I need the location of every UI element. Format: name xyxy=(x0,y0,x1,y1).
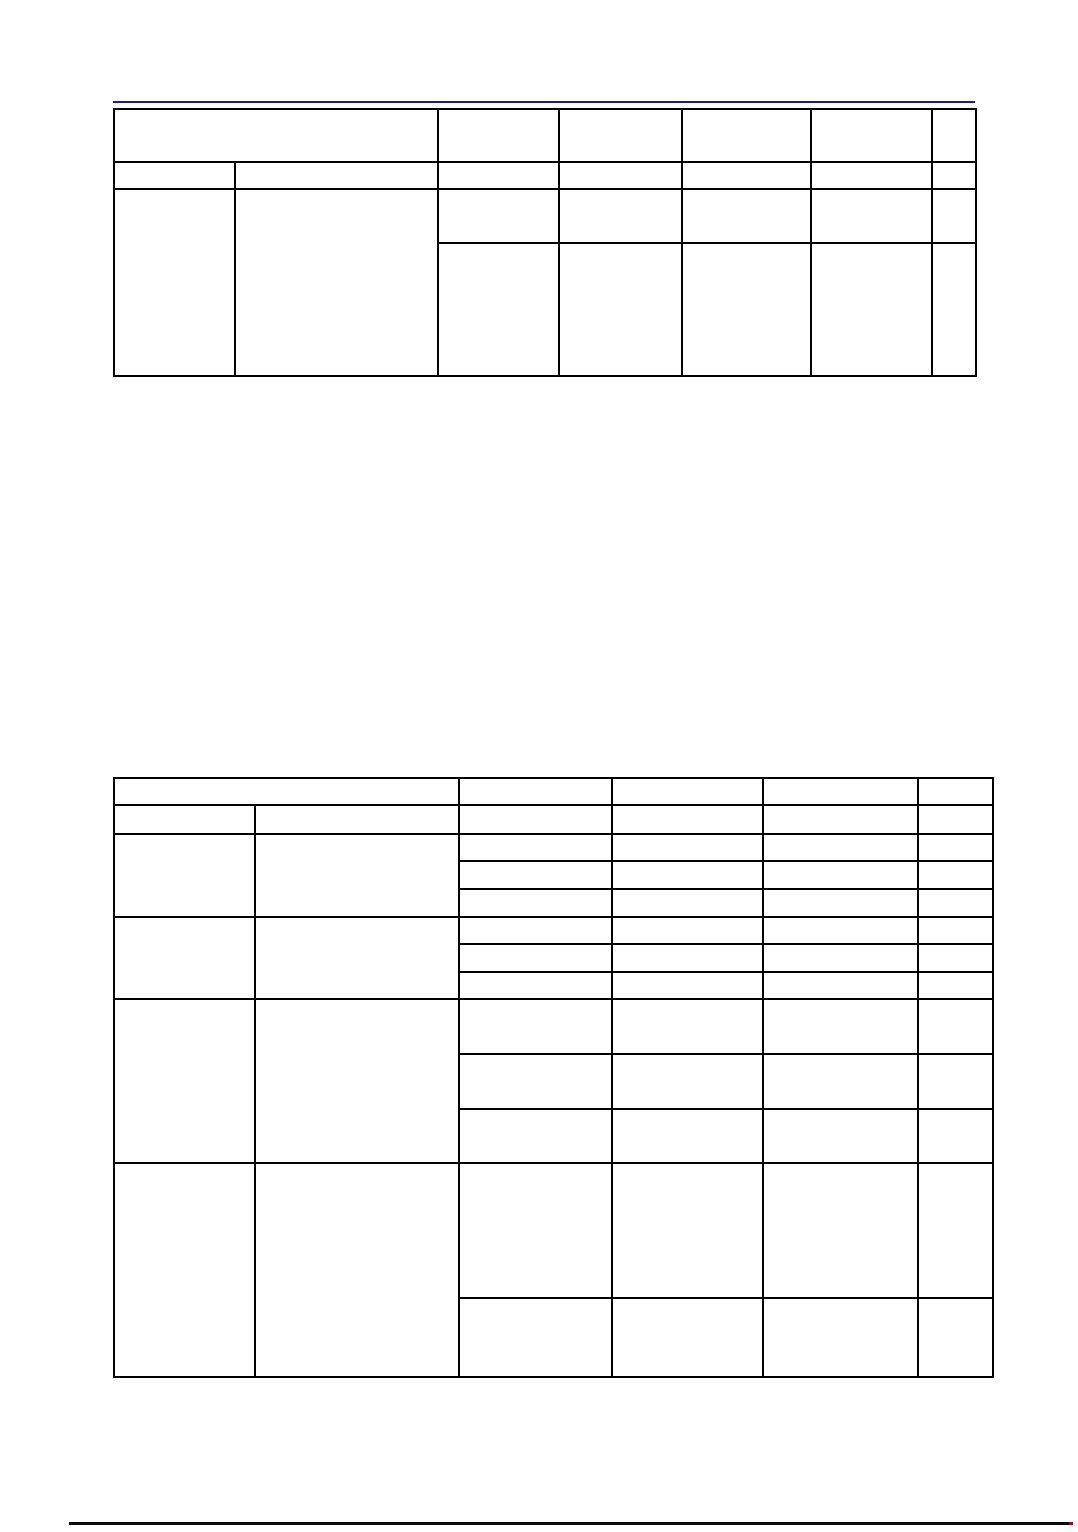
footer-rule xyxy=(69,1522,1073,1525)
empty-cell xyxy=(763,1109,918,1163)
table-row xyxy=(114,189,976,243)
empty-cell xyxy=(763,834,918,861)
empty-cell xyxy=(932,243,976,376)
empty-cell xyxy=(438,162,559,189)
empty-cell xyxy=(763,1054,918,1109)
empty-cell xyxy=(763,1163,918,1298)
empty-cell xyxy=(459,944,612,972)
empty-cell xyxy=(682,162,811,189)
empty-cell xyxy=(811,189,932,243)
table-row xyxy=(114,109,976,162)
empty-cell xyxy=(918,1163,993,1298)
empty-cell xyxy=(612,1054,763,1109)
table-row xyxy=(114,917,993,944)
empty-cell xyxy=(612,1109,763,1163)
empty-cell xyxy=(459,889,612,917)
header-rule xyxy=(113,101,975,103)
empty-cell xyxy=(918,944,993,972)
document-page xyxy=(0,0,1078,1532)
table-row xyxy=(114,778,993,805)
empty-cell xyxy=(918,999,993,1054)
empty-cell xyxy=(114,109,438,162)
empty-cell xyxy=(682,109,811,162)
empty-cell xyxy=(918,1109,993,1163)
empty-cell xyxy=(559,162,682,189)
empty-cell xyxy=(255,834,459,917)
empty-cell xyxy=(235,189,438,376)
empty-cell xyxy=(932,162,976,189)
empty-cell xyxy=(612,834,763,861)
empty-cell xyxy=(459,805,612,834)
empty-cell xyxy=(612,778,763,805)
empty-cell xyxy=(682,189,811,243)
empty-cell xyxy=(559,243,682,376)
empty-cell xyxy=(438,109,559,162)
empty-cell xyxy=(459,778,612,805)
empty-cell xyxy=(932,109,976,162)
empty-cell xyxy=(763,805,918,834)
table-row xyxy=(114,805,993,834)
empty-cell xyxy=(459,999,612,1054)
lower-table xyxy=(113,777,994,1378)
empty-cell xyxy=(763,889,918,917)
empty-cell xyxy=(459,1109,612,1163)
empty-cell xyxy=(763,972,918,999)
empty-cell xyxy=(459,917,612,944)
empty-cell xyxy=(459,1298,612,1377)
empty-cell xyxy=(918,889,993,917)
empty-cell xyxy=(612,972,763,999)
empty-cell xyxy=(811,109,932,162)
empty-cell xyxy=(811,243,932,376)
empty-cell xyxy=(612,944,763,972)
empty-cell xyxy=(114,999,255,1163)
footer-rule-end-mark xyxy=(1069,1522,1073,1525)
empty-cell xyxy=(918,861,993,889)
empty-cell xyxy=(255,805,459,834)
empty-cell xyxy=(438,189,559,243)
empty-cell xyxy=(459,972,612,999)
table-row xyxy=(114,834,993,861)
empty-cell xyxy=(763,861,918,889)
table-row xyxy=(114,999,993,1054)
empty-cell xyxy=(811,162,932,189)
empty-cell xyxy=(763,778,918,805)
empty-cell xyxy=(459,834,612,861)
empty-cell xyxy=(918,834,993,861)
empty-cell xyxy=(114,834,255,917)
empty-cell xyxy=(255,917,459,999)
upper-table xyxy=(113,108,977,377)
empty-cell xyxy=(114,1163,255,1377)
empty-cell xyxy=(255,999,459,1163)
empty-cell xyxy=(763,944,918,972)
empty-cell xyxy=(114,162,235,189)
empty-cell xyxy=(114,189,235,376)
empty-cell xyxy=(932,189,976,243)
empty-cell xyxy=(918,1054,993,1109)
empty-cell xyxy=(235,162,438,189)
empty-cell xyxy=(918,972,993,999)
empty-cell xyxy=(763,1298,918,1377)
empty-cell xyxy=(612,805,763,834)
empty-cell xyxy=(918,917,993,944)
empty-cell xyxy=(114,778,459,805)
empty-cell xyxy=(612,889,763,917)
empty-cell xyxy=(612,1298,763,1377)
empty-cell xyxy=(459,1054,612,1109)
empty-cell xyxy=(255,1163,459,1377)
empty-cell xyxy=(612,999,763,1054)
empty-cell xyxy=(918,1298,993,1377)
empty-cell xyxy=(612,917,763,944)
empty-cell xyxy=(918,778,993,805)
empty-cell xyxy=(763,917,918,944)
empty-cell xyxy=(559,109,682,162)
empty-cell xyxy=(763,999,918,1054)
empty-cell xyxy=(438,243,559,376)
empty-cell xyxy=(612,861,763,889)
empty-cell xyxy=(682,243,811,376)
empty-cell xyxy=(559,189,682,243)
empty-cell xyxy=(114,805,255,834)
table-row xyxy=(114,162,976,189)
table-row xyxy=(114,1163,993,1298)
empty-cell xyxy=(459,1163,612,1298)
empty-cell xyxy=(918,805,993,834)
empty-cell xyxy=(114,917,255,999)
empty-cell xyxy=(459,861,612,889)
empty-cell xyxy=(612,1163,763,1298)
